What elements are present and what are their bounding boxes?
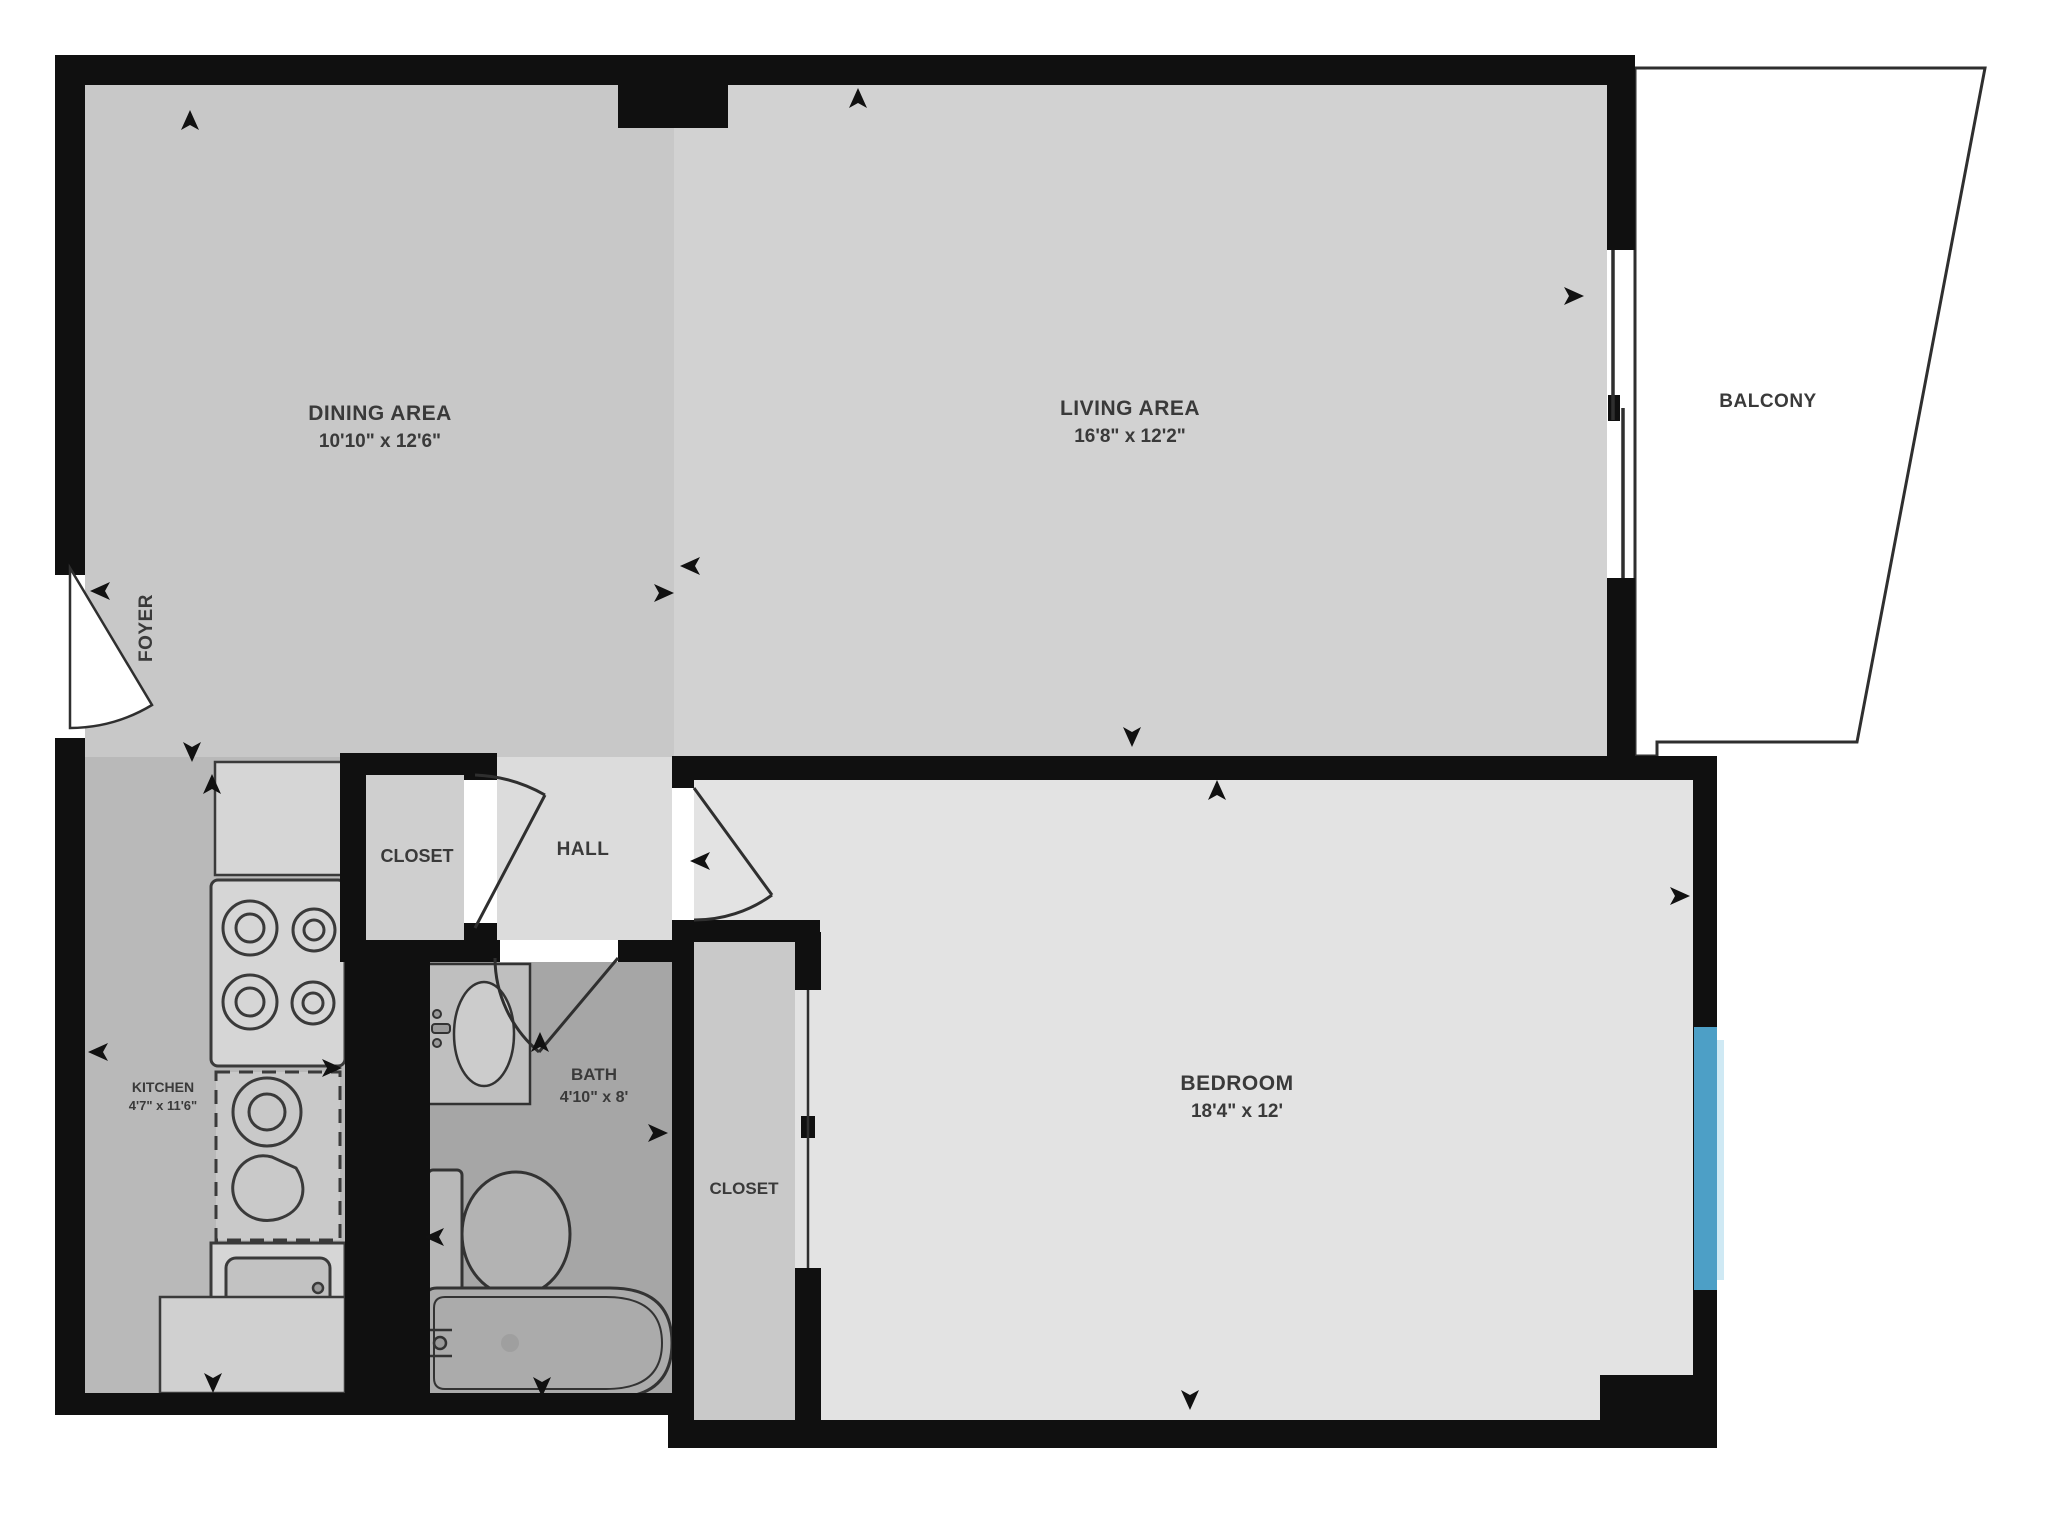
closet-door-cap-bottom	[795, 1268, 821, 1423]
bath-dims: 4'10" x 8'	[560, 1089, 629, 1106]
bath-top-wall-right	[618, 940, 673, 962]
window-glow	[1717, 1040, 1724, 1280]
kitchen-bath-divider-wall	[345, 962, 430, 1393]
kitchen-bottom-wall	[55, 1393, 690, 1415]
kitchen-dims: 4'7" x 11'6"	[129, 1098, 197, 1113]
kitchen-label: KITCHEN	[132, 1079, 194, 1095]
floor-plan-svg: DINING AREA 10'10" x 12'6" LIVING AREA 1…	[0, 0, 2048, 1522]
bedroom-corner-block	[1600, 1375, 1717, 1448]
toilet-bowl-icon	[462, 1172, 570, 1296]
dining-area-label: DINING AREA	[308, 402, 452, 425]
left-wall-lower	[55, 738, 85, 1415]
bedroom-dims: 18'4" x 12'	[1191, 1101, 1283, 1122]
living-area-label: LIVING AREA	[1060, 397, 1200, 420]
living-right-wall-lower	[1607, 578, 1635, 780]
kitchen-counter-icon	[215, 762, 345, 875]
hall-closet-label: CLOSET	[380, 846, 453, 866]
bedroom-top-wall	[672, 756, 1717, 780]
vanity-basin-icon	[454, 982, 514, 1086]
left-wall-upper	[55, 55, 85, 575]
living-right-wall-upper	[1607, 55, 1635, 250]
hall-closet-left-wall	[340, 753, 366, 962]
foyer-label: FOYER	[136, 594, 157, 662]
bedroom-label: BEDROOM	[1180, 1072, 1293, 1095]
living-area-dims: 16'8" x 12'2"	[1074, 426, 1186, 447]
balcony-label: BALCONY	[1719, 391, 1816, 412]
bedroom-closet-label: CLOSET	[710, 1179, 780, 1198]
top-wall-column	[618, 85, 728, 128]
living-area-floor	[674, 85, 1607, 757]
bedroom-bottom-wall	[668, 1420, 1717, 1448]
kitchen-lower-counter-icon	[160, 1297, 345, 1393]
floor-plan: DINING AREA 10'10" x 12'6" LIVING AREA 1…	[0, 0, 2048, 1522]
bedroom-floor	[694, 780, 1693, 1420]
dining-area-dims: 10'10" x 12'6"	[319, 431, 441, 452]
hall-bedroom-wall-jamb	[672, 756, 694, 788]
bedroom-window	[1694, 1027, 1717, 1290]
hall-label: HALL	[557, 839, 610, 860]
top-wall	[55, 55, 1635, 85]
hall-bedroom-wall	[672, 920, 694, 1421]
closet-door-cap-top	[795, 932, 821, 990]
bath-top-wall-left	[340, 940, 500, 962]
balcony-outline	[1635, 68, 1985, 756]
bath-label: BATH	[571, 1065, 617, 1084]
